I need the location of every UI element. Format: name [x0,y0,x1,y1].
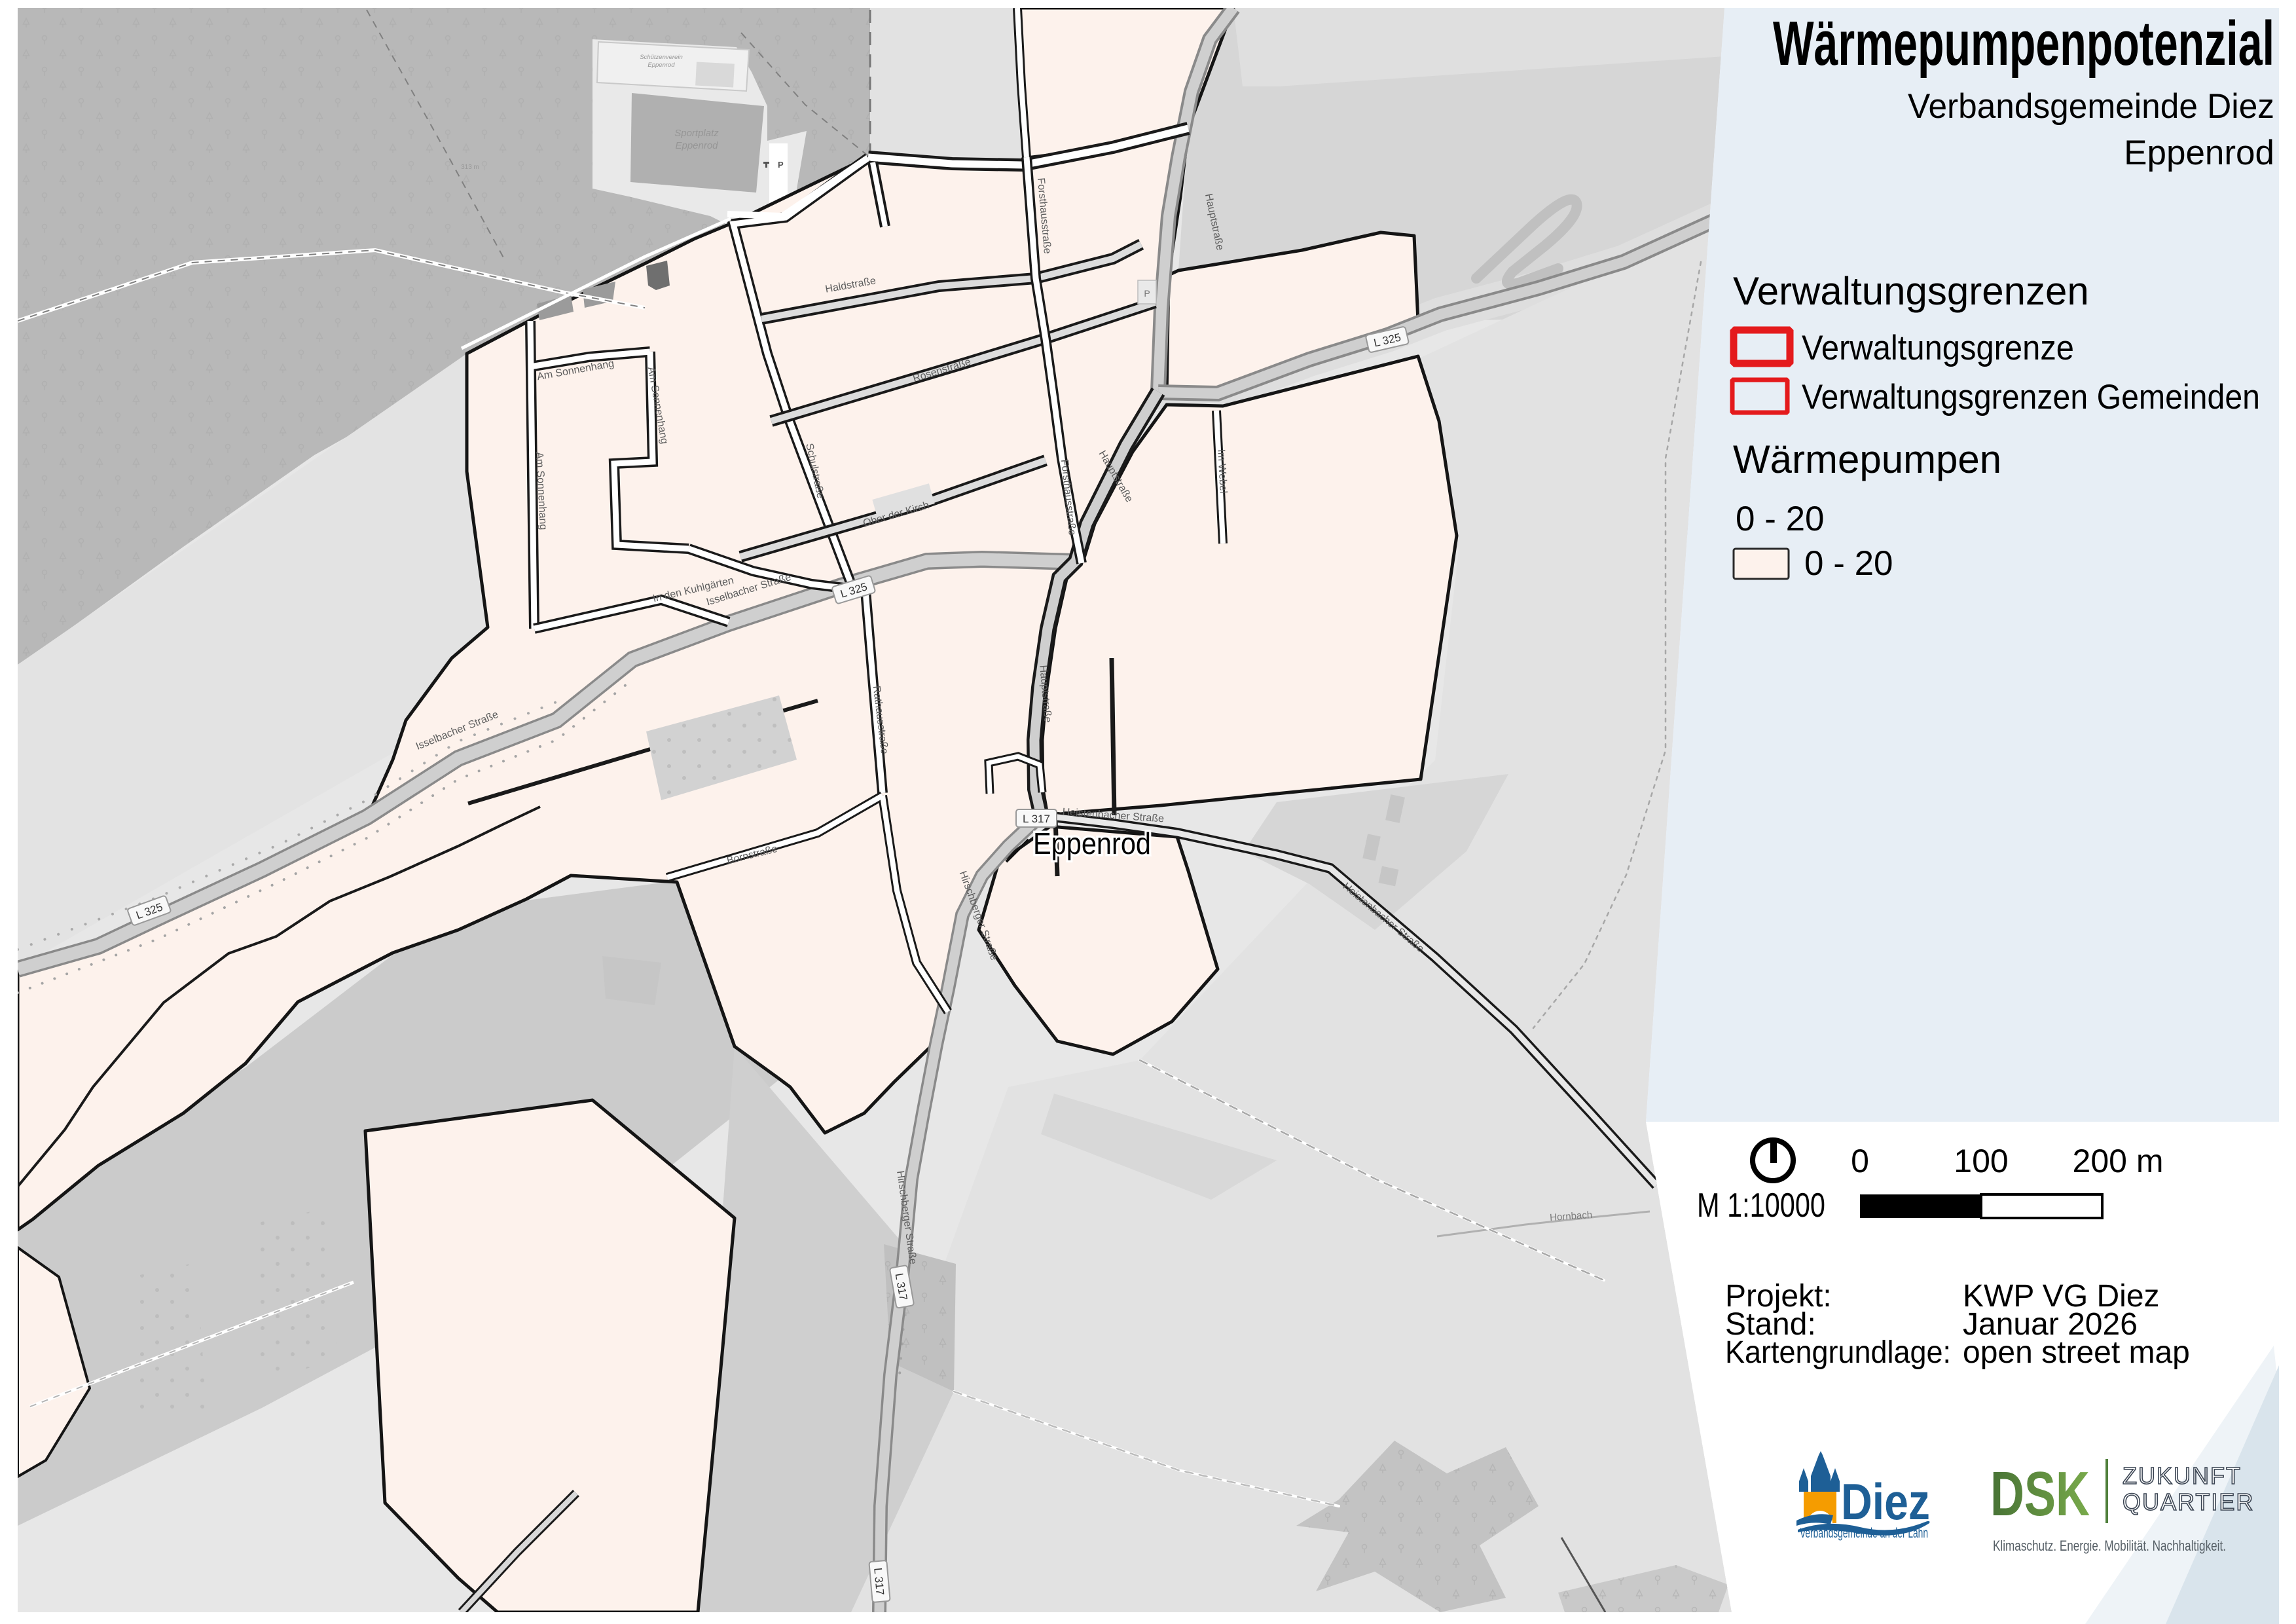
svg-text:Eppenrod: Eppenrod [647,62,675,69]
svg-text:0: 0 [1851,1143,1869,1179]
svg-text:QUARTIER: QUARTIER [2123,1488,2254,1515]
svg-text:Klimaschutz. Energie. Mobilitä: Klimaschutz. Energie. Mobilität. Nachhal… [1993,1538,2226,1554]
svg-text:Im Webel: Im Webel [1215,449,1228,494]
svg-text:Schützenverein: Schützenverein [640,54,682,61]
svg-text:L 317: L 317 [871,1567,886,1595]
svg-text:P: P [778,160,784,170]
svg-text:P: P [1144,288,1150,299]
svg-text:Wärmepumpen: Wärmepumpen [1733,437,2001,481]
svg-text:Wärmepumpenpotenzial: Wärmepumpenpotenzial [1773,9,2274,79]
svg-text:Verwaltungsgrenzen Gemeinden: Verwaltungsgrenzen Gemeinden [1802,378,2260,416]
svg-text:200 m: 200 m [2073,1143,2164,1179]
svg-text:Verbandsgemeinde Diez: Verbandsgemeinde Diez [1908,87,2274,126]
svg-text:0 - 20: 0 - 20 [1804,544,1893,583]
svg-text:Eppenrod: Eppenrod [1033,826,1151,860]
svg-text:Diez: Diez [1841,1473,1930,1530]
svg-text:L 317: L 317 [1023,813,1050,825]
svg-text:Kartengrundlage:: Kartengrundlage: [1725,1335,1951,1370]
svg-text:ZUKUNFT: ZUKUNFT [2123,1462,2242,1489]
svg-text:Verwaltungsgrenzen: Verwaltungsgrenzen [1733,269,2089,313]
svg-text:100: 100 [1954,1143,2008,1179]
svg-text:DSK: DSK [1990,1459,2090,1529]
svg-text:M 1:10000: M 1:10000 [1697,1187,1825,1225]
svg-text:313 m: 313 m [461,164,479,171]
svg-text:Eppenrod: Eppenrod [675,140,718,151]
svg-text:Sportplatz: Sportplatz [674,128,719,139]
svg-text:Verbandsgemeinde an der Lahn: Verbandsgemeinde an der Lahn [1800,1526,1928,1541]
svg-text:open street map: open street map [1963,1335,2190,1370]
svg-text:0 - 20: 0 - 20 [1736,500,1825,538]
svg-text:Eppenrod: Eppenrod [2124,134,2274,172]
svg-text:Verwaltungsgrenze: Verwaltungsgrenze [1802,329,2074,367]
